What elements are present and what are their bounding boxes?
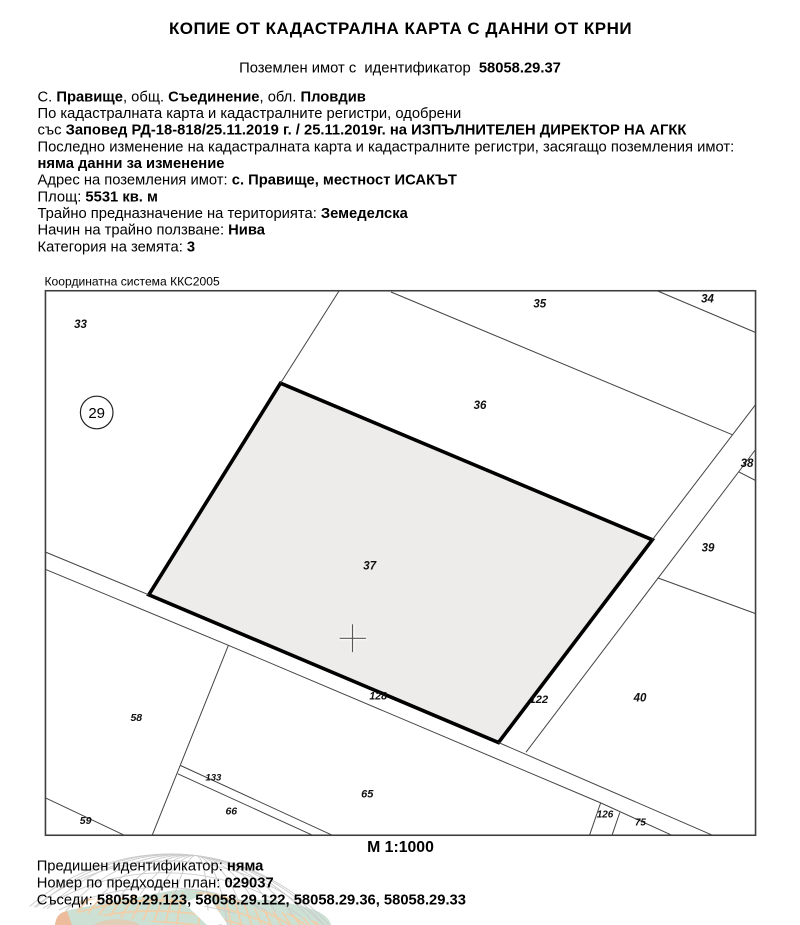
svg-text:37: 37: [363, 561, 376, 573]
svg-text:По кадастралната карта и кадас: По кадастралната карта и кадастралните р…: [38, 106, 462, 122]
svg-text:Предишен идентификатор: няма: Предишен идентификатор: няма: [37, 859, 264, 875]
svg-text:75: 75: [635, 817, 646, 828]
svg-text:КОПИЕ ОТ КАДАСТРАЛНА КАРТА С Д: КОПИЕ ОТ КАДАСТРАЛНА КАРТА С ДАННИ ОТ КР…: [169, 19, 632, 38]
svg-text:Поземлен имот с идентификатор: Поземлен имот с идентификатор 58058.29.3…: [239, 60, 561, 76]
svg-text:36: 36: [474, 400, 487, 412]
svg-text:няма данни за изменение: няма данни за изменение: [38, 156, 225, 172]
svg-text:Координатна система ККС2005: Координатна система ККС2005: [45, 274, 220, 288]
svg-text:133: 133: [205, 772, 222, 783]
svg-text:Съседи: 58058.29.123, 58058.29: Съседи: 58058.29.123, 58058.29.122, 5805…: [37, 892, 466, 908]
svg-text:М 1:1000: М 1:1000: [367, 839, 434, 856]
svg-text:128: 128: [369, 691, 387, 703]
svg-text:29: 29: [88, 405, 105, 422]
svg-text:Начин на трайно ползване: Нива: Начин на трайно ползване: Нива: [38, 223, 266, 239]
svg-text:65: 65: [361, 789, 374, 801]
svg-text:34: 34: [701, 293, 714, 305]
svg-text:33: 33: [74, 319, 87, 331]
svg-text:66: 66: [225, 805, 237, 817]
svg-text:Трайно предназначение на терит: Трайно предназначение на територията: Зе…: [38, 206, 409, 222]
svg-text:Площ: 5531 кв. м: Площ: 5531 кв. м: [38, 189, 158, 205]
svg-text:със Заповед РД-18-818/25.11.20: със Заповед РД-18-818/25.11.2019 г. / 25…: [38, 123, 688, 139]
svg-text:40: 40: [633, 692, 647, 704]
svg-text:58: 58: [130, 712, 142, 724]
svg-text:Категория на земята: 3: Категория на земята: 3: [38, 239, 196, 255]
svg-text:Последно изменение на кадастра: Последно изменение на кадастралната карт…: [38, 139, 735, 155]
svg-text:38: 38: [741, 458, 754, 470]
svg-text:С. Правище, общ. Съединение, о: С. Правище, общ. Съединение, обл. Пловди…: [38, 89, 366, 105]
svg-text:Номер по предходен план: 02903: Номер по предходен план: 029037: [37, 876, 274, 892]
svg-text:35: 35: [533, 299, 546, 311]
svg-text:59: 59: [80, 815, 92, 827]
svg-text:Адрес на поземления имот: с. П: Адрес на поземления имот: с. Правище, ме…: [38, 173, 457, 189]
svg-text:39: 39: [702, 543, 715, 555]
svg-text:122: 122: [529, 694, 549, 706]
svg-text:126: 126: [597, 809, 614, 820]
